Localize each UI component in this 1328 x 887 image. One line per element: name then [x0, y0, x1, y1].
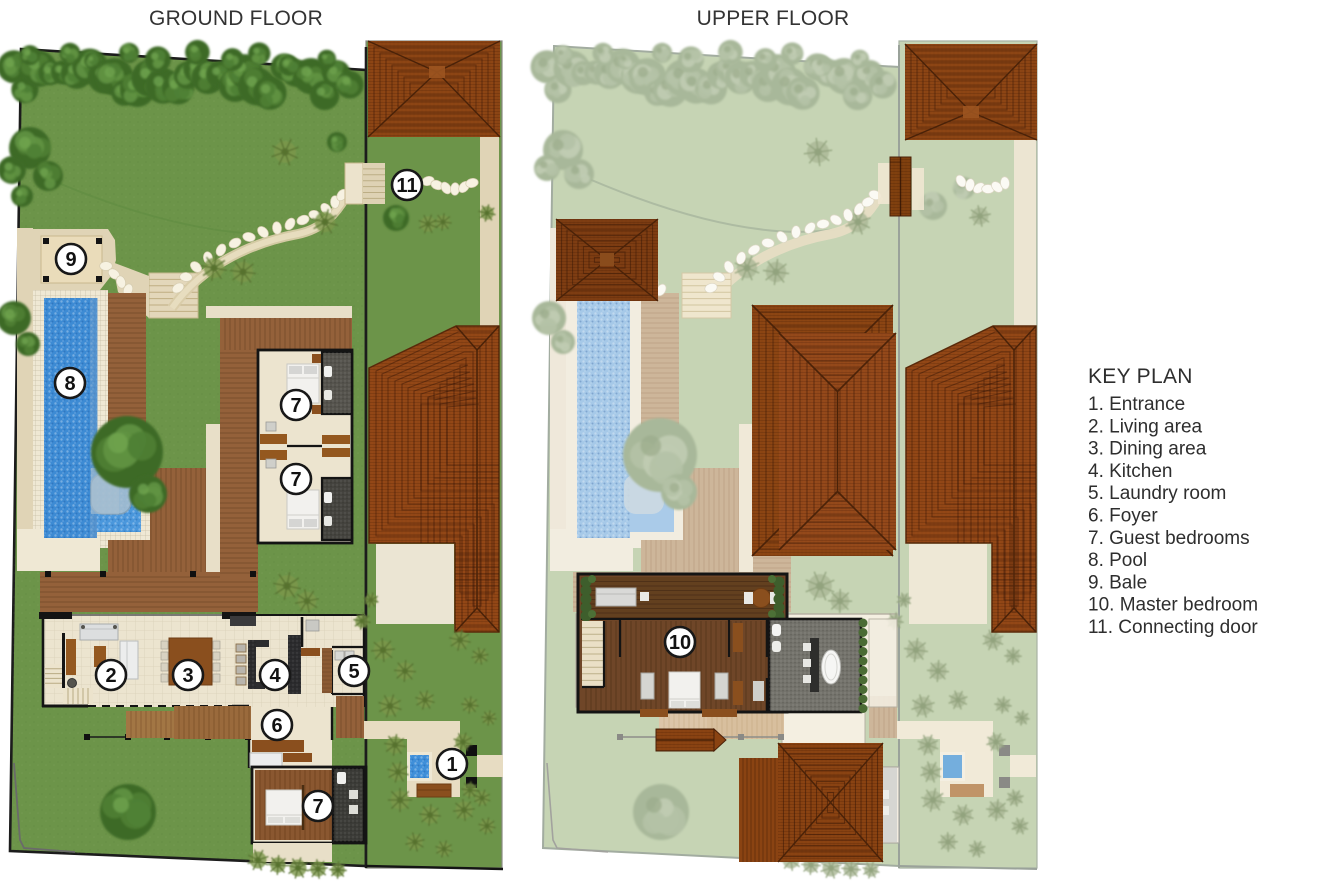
svg-text:6. Foyer: 6. Foyer [1088, 506, 1158, 527]
svg-text:10: 10 [669, 632, 691, 654]
svg-text:10. Master bedroom: 10. Master bedroom [1088, 595, 1258, 616]
svg-text:3. Dining area: 3. Dining area [1088, 439, 1207, 460]
svg-text:KEY PLAN: KEY PLAN [1088, 365, 1193, 388]
svg-text:1: 1 [446, 754, 457, 776]
svg-text:7: 7 [290, 395, 301, 417]
svg-text:5: 5 [348, 661, 359, 683]
svg-text:8. Pool: 8. Pool [1088, 550, 1147, 571]
svg-text:4: 4 [269, 665, 281, 687]
svg-text:2: 2 [105, 665, 116, 687]
svg-text:2. Living area: 2. Living area [1088, 416, 1203, 437]
svg-text:9. Bale: 9. Bale [1088, 572, 1147, 593]
svg-text:11. Connecting door: 11. Connecting door [1088, 617, 1258, 638]
svg-text:1. Entrance: 1. Entrance [1088, 394, 1185, 415]
svg-text:UPPER FLOOR: UPPER FLOOR [697, 7, 850, 30]
svg-text:9: 9 [65, 249, 76, 271]
svg-text:11: 11 [396, 175, 417, 197]
svg-text:5. Laundry room: 5. Laundry room [1088, 483, 1226, 504]
svg-text:GROUND FLOOR: GROUND FLOOR [149, 7, 323, 30]
svg-text:3: 3 [182, 665, 193, 687]
svg-text:8: 8 [64, 373, 75, 395]
svg-text:7: 7 [312, 796, 323, 818]
svg-text:7. Guest bedrooms: 7. Guest bedrooms [1088, 528, 1250, 549]
svg-text:4. Kitchen: 4. Kitchen [1088, 461, 1173, 482]
svg-text:7: 7 [290, 469, 301, 491]
svg-text:6: 6 [271, 715, 282, 737]
